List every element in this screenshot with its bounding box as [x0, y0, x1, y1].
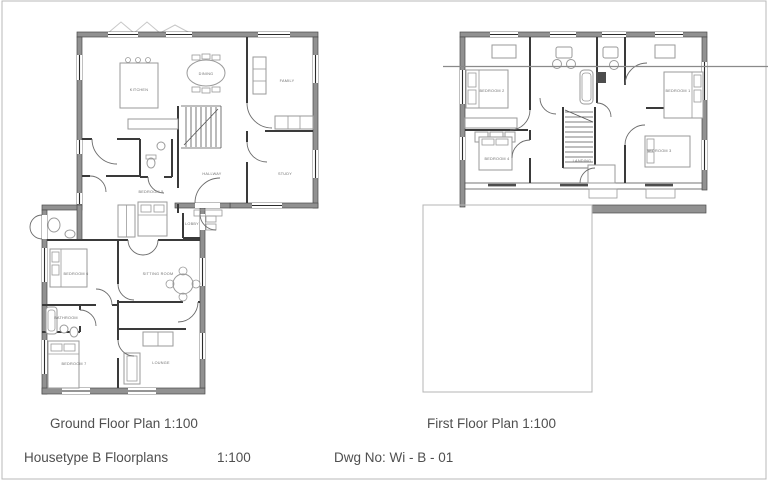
bathroom1-toilet: [65, 230, 75, 238]
room-label-study: Study: [278, 172, 292, 176]
sheet-scale: 1:100: [217, 450, 251, 465]
balcony-left: [589, 189, 617, 198]
lounge-piano: [124, 353, 140, 384]
ground-floor-room-labels: Kitchen Dining Family Hallway Study Bedr…: [54, 72, 294, 366]
ensuite-sink: [610, 61, 619, 70]
room-label-hallway: Hallway: [202, 172, 221, 176]
bathroom-sink-2: [567, 60, 576, 69]
bathroom-toilet: [556, 47, 572, 58]
room-label-bedroom2: Bedroom 2: [479, 89, 504, 93]
room-label-kitchen: Kitchen: [130, 88, 148, 92]
bathroom2-sink: [60, 325, 68, 333]
ground-floor-partitions: [42, 37, 313, 388]
bathroom2-toilet: [70, 327, 78, 337]
kitchen-island: [120, 63, 158, 108]
balcony-right: [646, 189, 675, 198]
ground-floor-stairs: [181, 106, 221, 148]
front-door-step: [194, 210, 222, 216]
sheet-title: Housetype B Floorplans: [24, 450, 168, 465]
ensuite-toilet: [603, 47, 618, 58]
ensuite-shower: [596, 72, 606, 83]
bedroom1-wardrobe: [655, 45, 675, 58]
bedroom4-bed: [479, 137, 512, 170]
floorplan-sheet: Kitchen Dining Family Hallway Study Bedr…: [0, 0, 768, 482]
room-label-bathroom: Bathroom: [54, 316, 78, 320]
ground-floor-furniture: [46, 54, 313, 388]
room-label-lounge: Lounge: [152, 361, 170, 365]
bedroom1-bed: [664, 72, 703, 118]
bathroom1-sink: [48, 218, 60, 232]
wc-toilet: [147, 158, 155, 168]
lobby-step: [206, 216, 216, 222]
front-door-gap: [195, 203, 220, 208]
ground-floor-windows: [42, 32, 318, 394]
floorplan-drawing: Kitchen Dining Family Hallway Study Bedr…: [0, 0, 768, 482]
room-label-family: Family: [280, 79, 295, 83]
room-label-lobby: Lobby: [185, 222, 199, 226]
room-label-bedroom6: Bedroom 6: [63, 272, 88, 276]
first-floor-title: First Floor Plan 1:100: [427, 416, 556, 431]
room-label-dining: Dining: [199, 72, 214, 76]
room-label-bedroom5: Bedroom 5: [138, 190, 163, 194]
ground-floor-plan: Kitchen Dining Family Hallway Study Bedr…: [30, 22, 318, 394]
bedroom2-wardrobe: [492, 45, 516, 58]
room-label-sitting: Sitting Room: [143, 272, 174, 276]
ground-floor-outer-walls: [42, 32, 318, 394]
landing-unit: [588, 165, 615, 183]
bedroom5-bed: [138, 202, 167, 236]
roof-outline-zigzag: [108, 22, 190, 33]
room-label-bedroom3: Bedroom 3: [646, 149, 671, 153]
first-floor-furniture: [465, 45, 703, 198]
room-label-bedroom7: Bedroom 7: [61, 362, 86, 366]
garage-outline: [423, 205, 592, 392]
ground-floor-title: Ground Floor Plan 1:100: [50, 416, 198, 431]
lower-roof-wall: [592, 205, 706, 213]
patio-door-gap: [42, 215, 47, 239]
room-label-bedroom1: Bedroom 1: [665, 89, 690, 93]
captions: Ground Floor Plan 1:100 First Floor Plan…: [24, 416, 556, 465]
room-label-bedroom4: Bedroom 4: [484, 157, 509, 161]
bedroom6-bed: [50, 249, 87, 287]
first-floor-plan: Bedroom 2 Bedroom 1 Bedroom 4 Bedroom 3 …: [460, 32, 707, 213]
drawing-number: Dwg No: Wi - B - 01: [334, 450, 453, 465]
bathroom-sink: [553, 60, 562, 69]
bedroom2-unit: [465, 118, 517, 128]
family-sofa: [275, 116, 313, 129]
room-label-landing: Landing: [573, 159, 592, 163]
sitting-room-table: [173, 274, 193, 294]
kitchen-counter: [128, 119, 178, 129]
wc-sink: [157, 142, 165, 150]
shelving-unit: [253, 57, 266, 94]
